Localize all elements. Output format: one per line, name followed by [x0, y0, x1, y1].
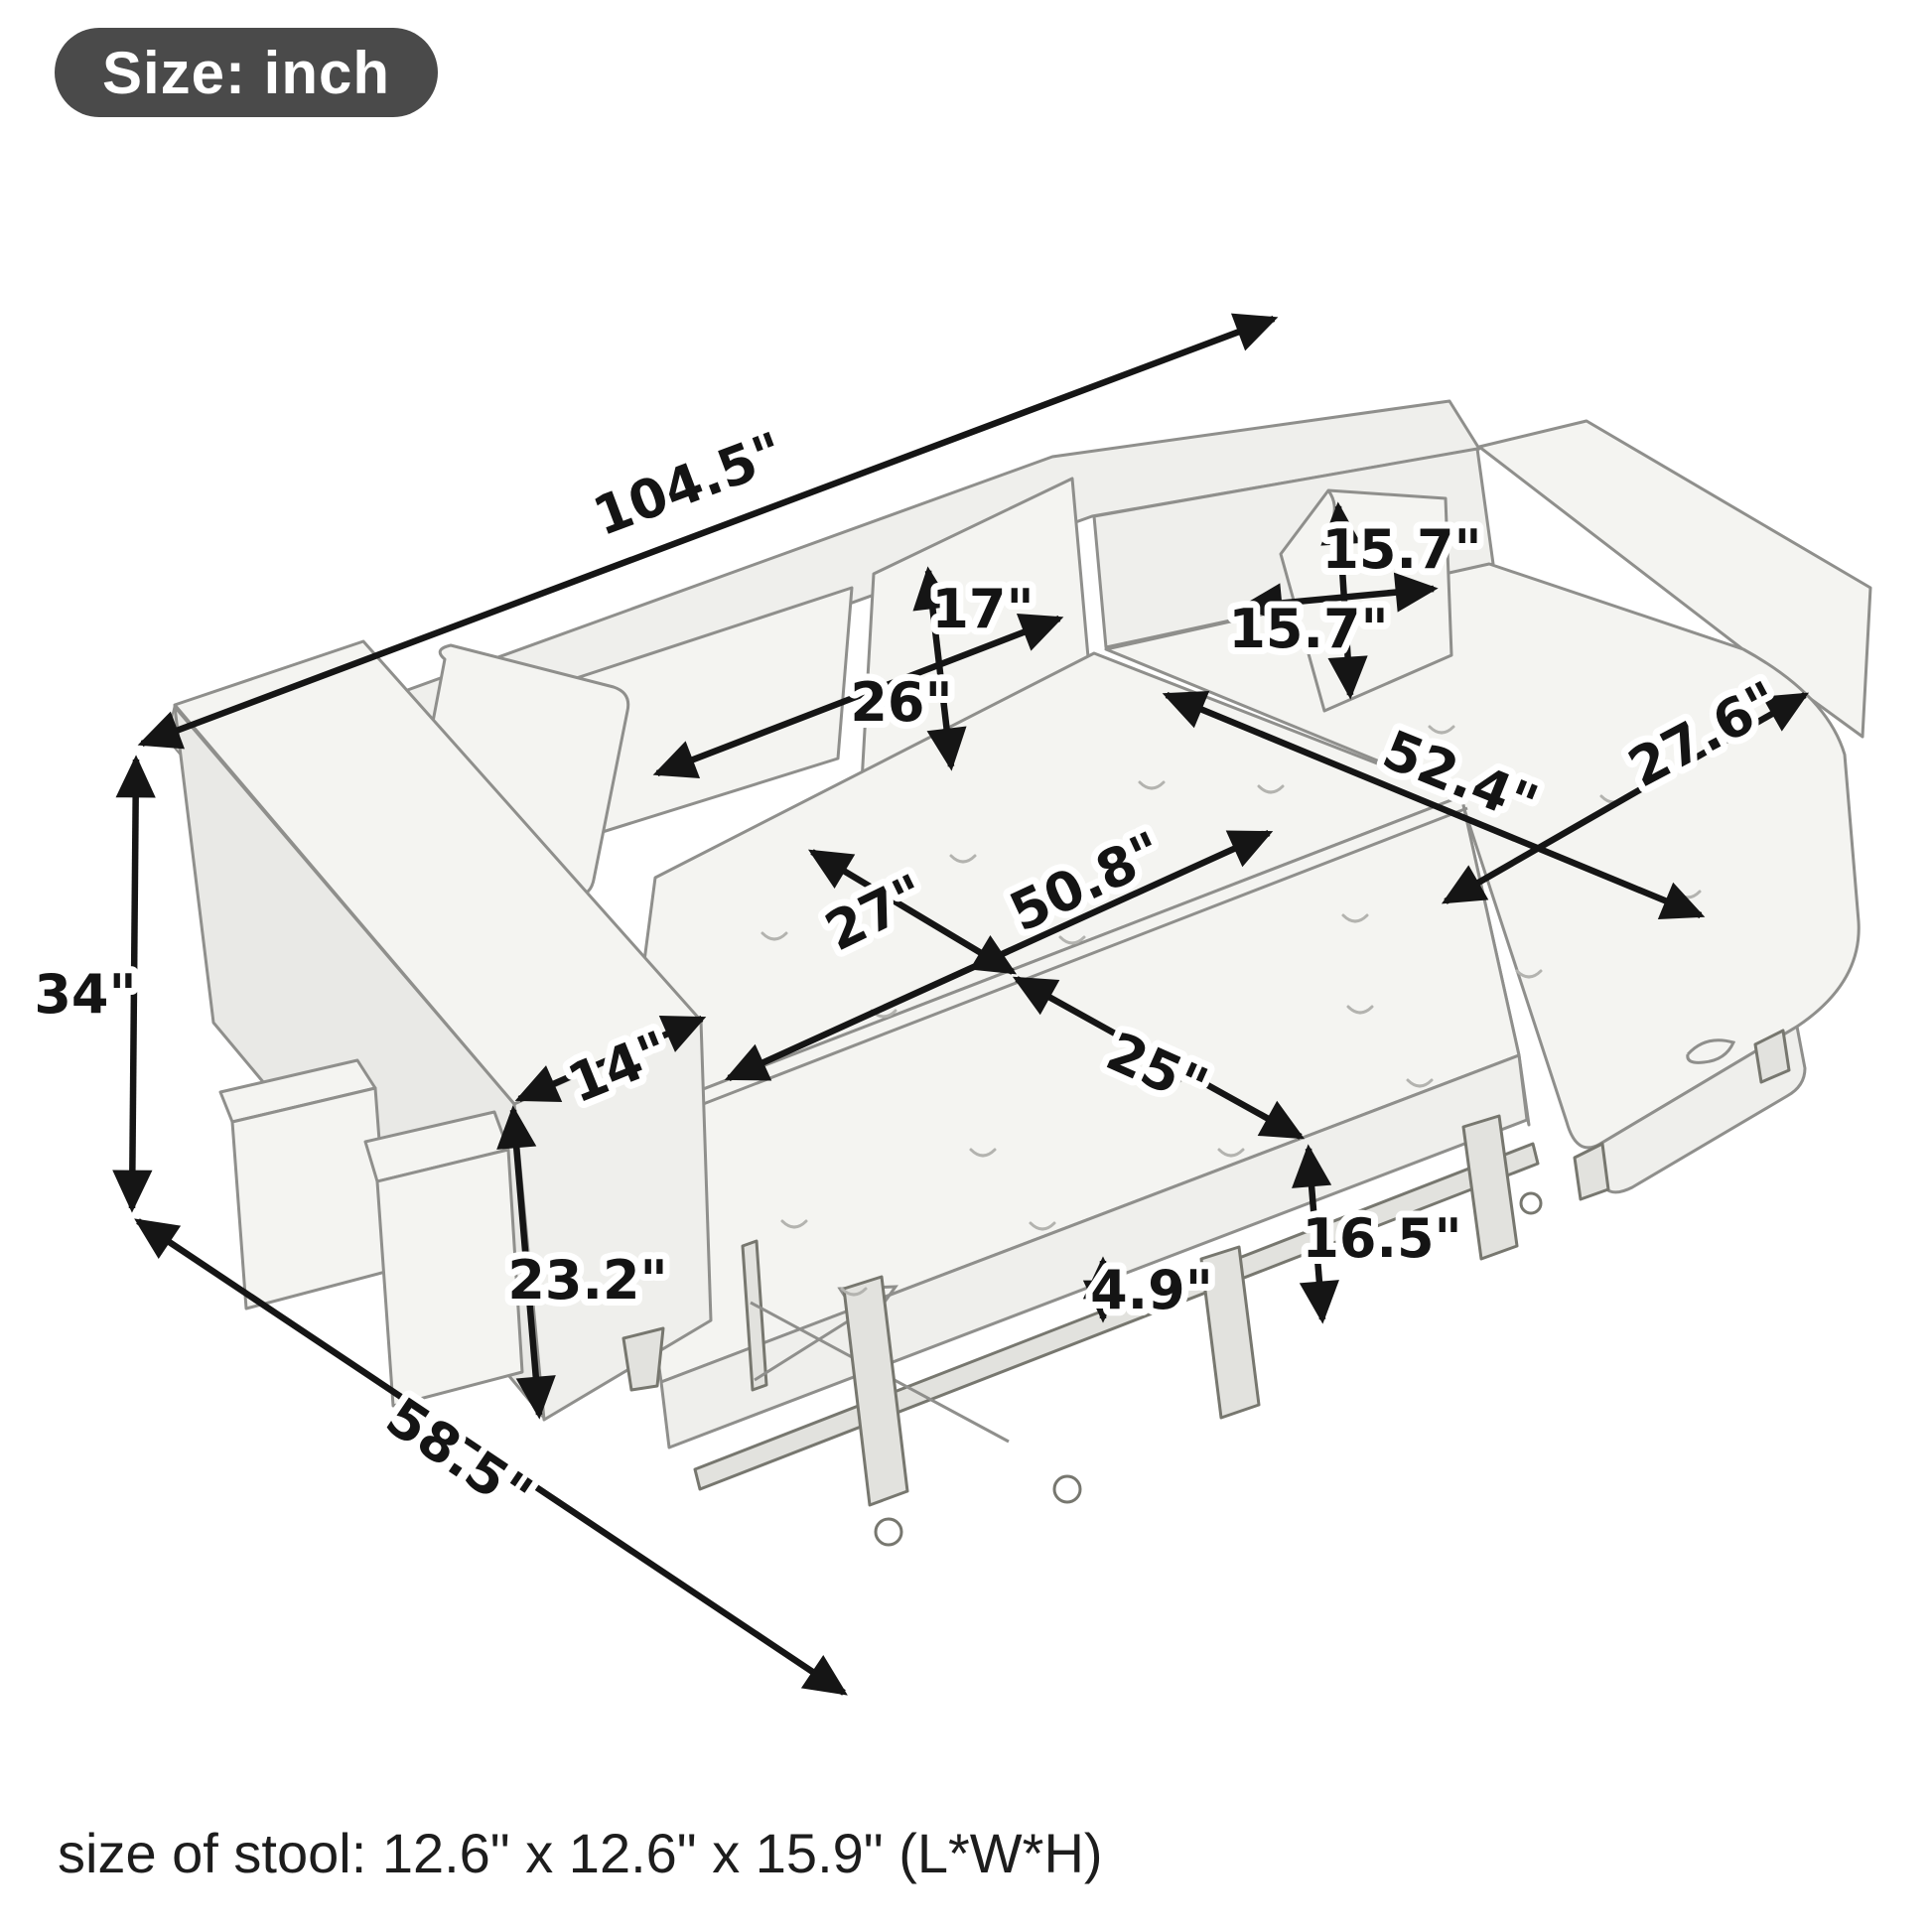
stool-rear	[232, 1088, 389, 1309]
dim-label-overall-length: 104.5"	[585, 420, 791, 548]
dim-label-seat-height: 16.5"	[1302, 1207, 1461, 1270]
dim-label-armrest-height: 23.2"	[507, 1249, 667, 1311]
bed-caster-middle	[1054, 1476, 1080, 1502]
bed-caster-left	[876, 1519, 901, 1545]
arm-wood-leg	[623, 1328, 663, 1390]
dim-label-pillow-height: 15.7"	[1321, 518, 1481, 581]
chaise-caster	[1521, 1193, 1541, 1213]
stool-front	[377, 1150, 522, 1406]
chaise-left-leg	[1575, 1144, 1608, 1199]
dim-label-overall-height: 34"	[34, 963, 136, 1026]
sofa-illustration	[167, 401, 1870, 1545]
stool-size-note: size of stool: 12.6" x 12.6" x 15.9" (L*…	[58, 1821, 1103, 1885]
size-unit-badge-label: Size: inch	[102, 39, 390, 107]
dimension-diagram-page: 104.5" 34" 58.5" 17" 26" 15.7" 15.7" 52.…	[0, 0, 1932, 1932]
sofa-dimension-figure: 104.5" 34" 58.5" 17" 26" 15.7" 15.7" 52.…	[0, 0, 1932, 1932]
dim-label-overall-depth: 58.5"	[375, 1385, 543, 1526]
dim-label-pillow-width: 15.7"	[1228, 598, 1388, 660]
dim-label-mattress-thickness: 4.9"	[1090, 1259, 1213, 1321]
dim-label-back-cushion-width: 26"	[850, 671, 952, 734]
dim-label-back-cushion-height: 17"	[931, 578, 1034, 640]
size-unit-badge: Size: inch	[55, 28, 438, 117]
bed-leg-right	[1463, 1116, 1517, 1259]
